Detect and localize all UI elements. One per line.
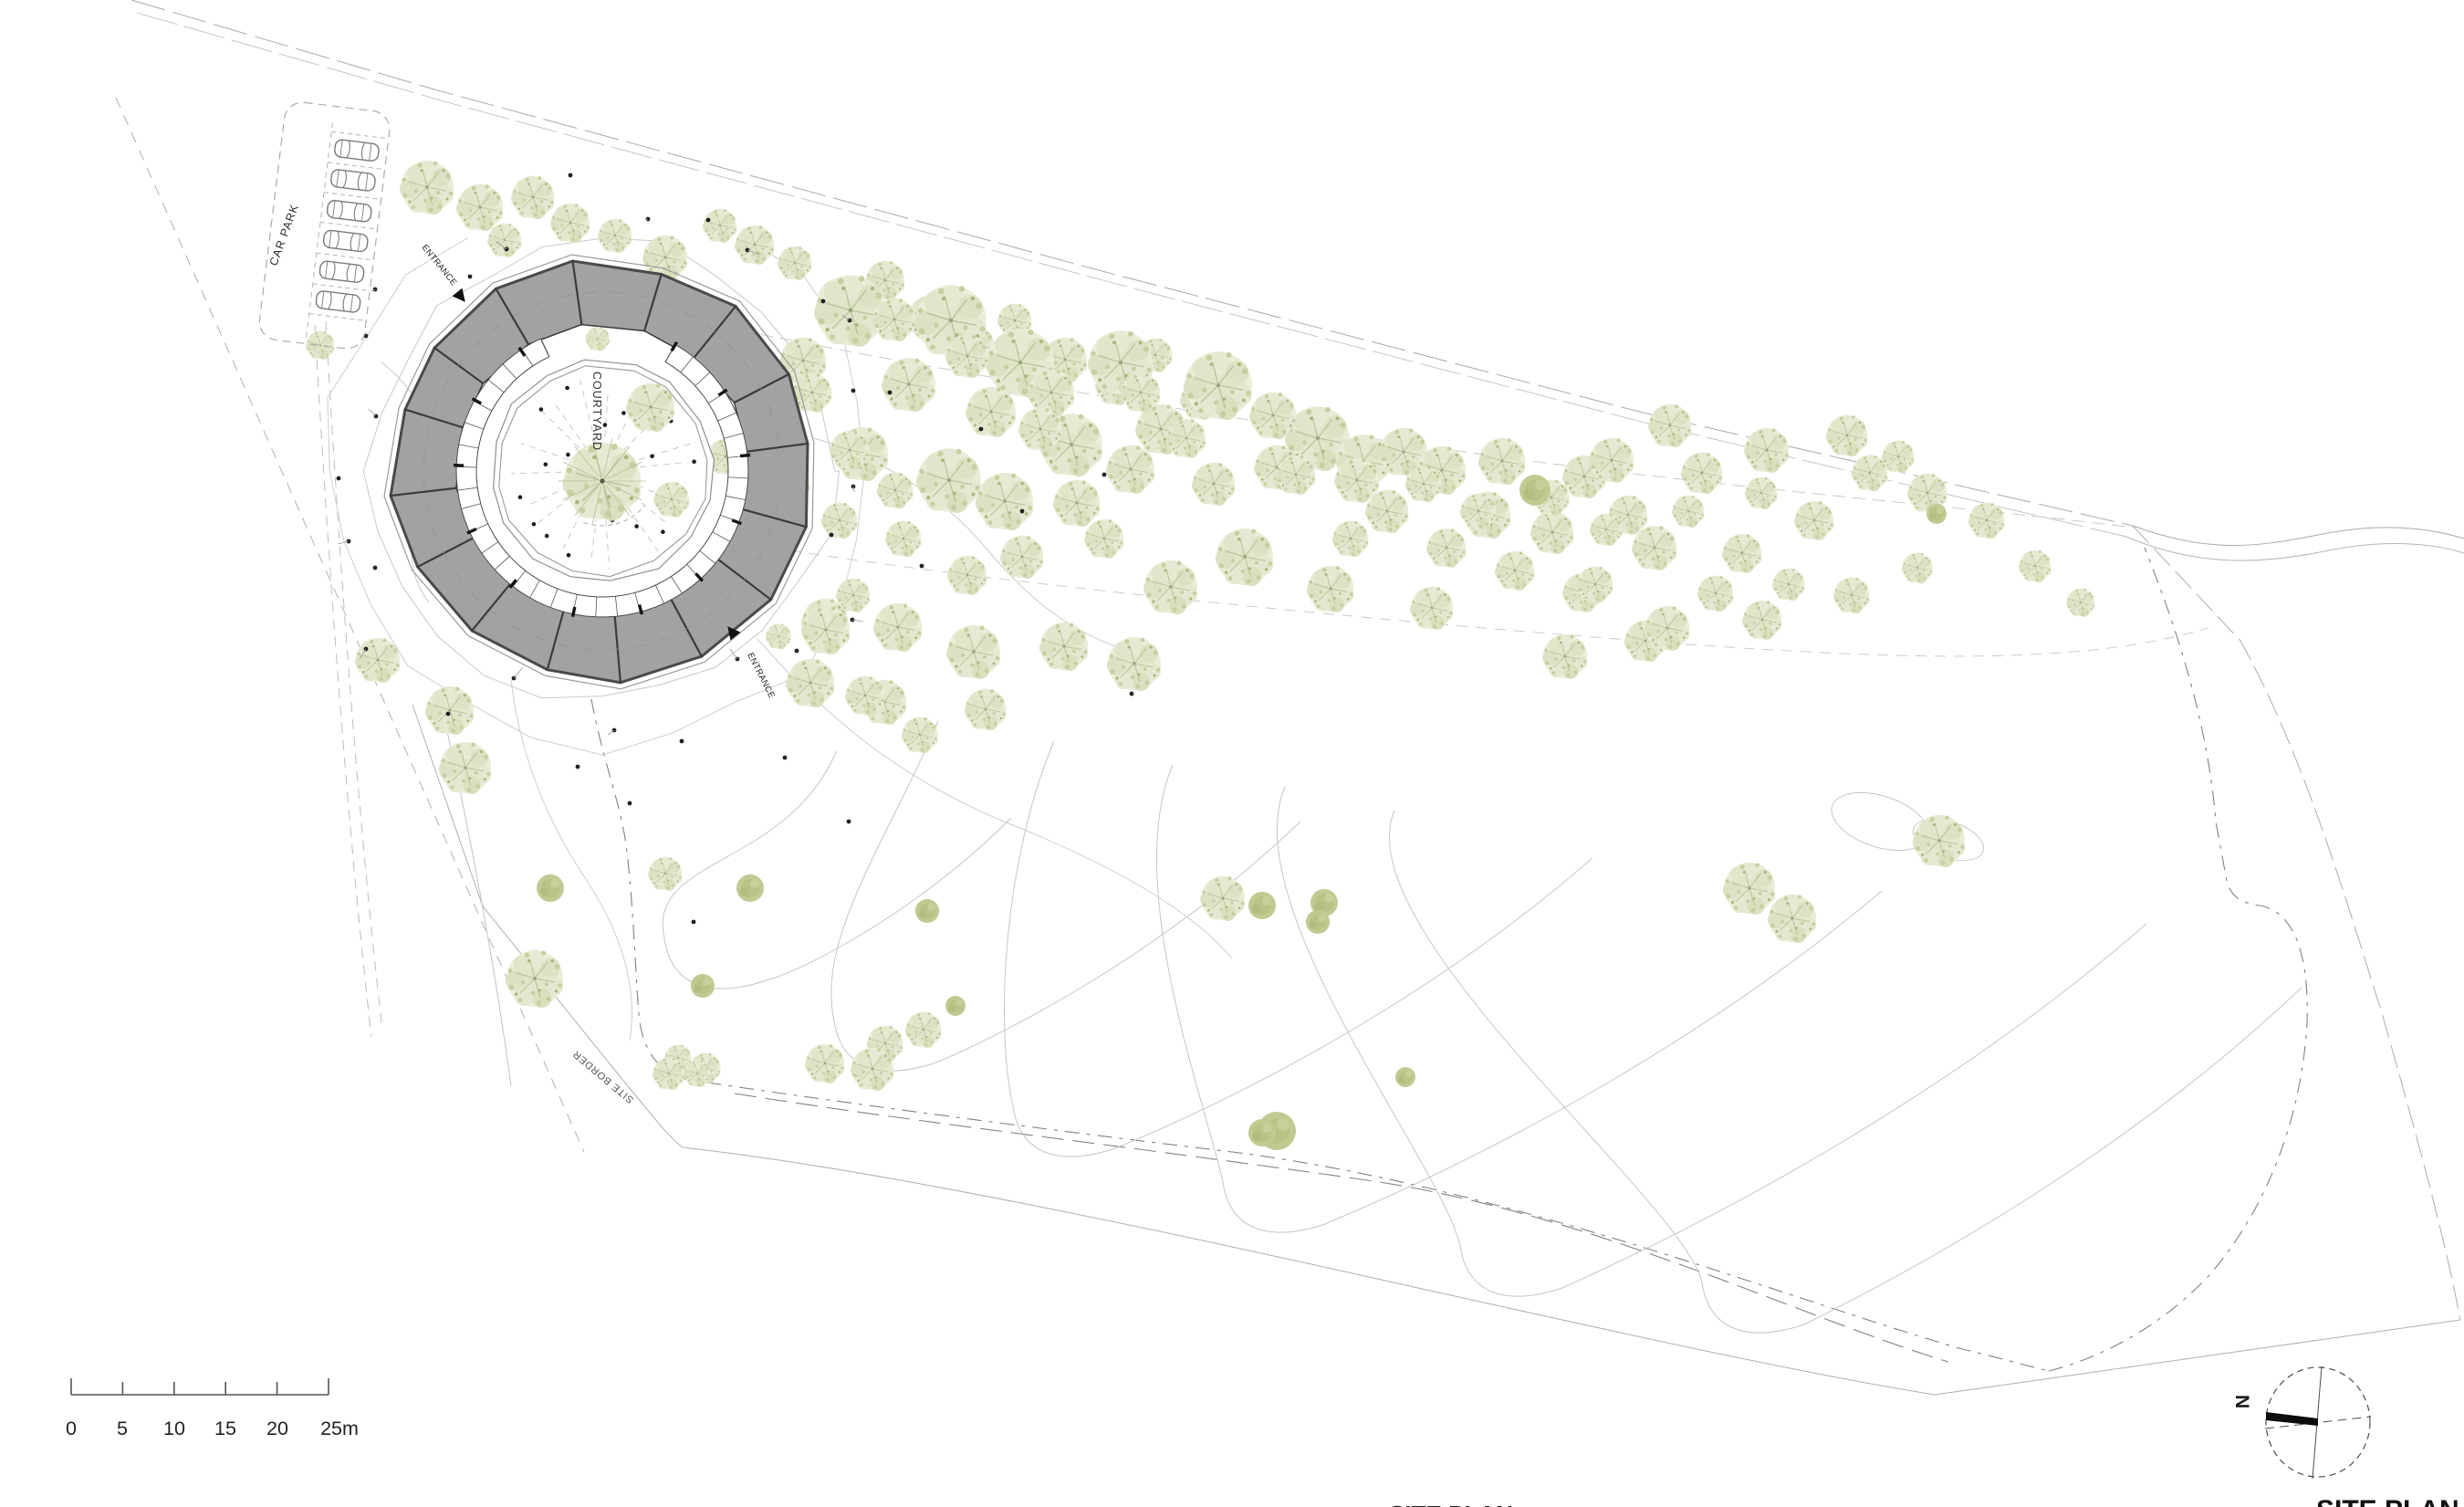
svg-text:SITE PLAN: SITE PLAN — [1389, 1501, 1513, 1507]
svg-text:COURTYARD: COURTYARD — [590, 372, 603, 451]
svg-text:20: 20 — [266, 1418, 288, 1439]
svg-text:15: 15 — [214, 1418, 236, 1439]
svg-text:0: 0 — [66, 1418, 77, 1439]
svg-text:N: N — [2231, 1395, 2252, 1408]
svg-text:5: 5 — [117, 1418, 128, 1439]
svg-text:SITE PLAN: SITE PLAN — [2316, 1495, 2459, 1507]
svg-text:10: 10 — [163, 1418, 185, 1439]
svg-text:25m: 25m — [320, 1418, 359, 1439]
